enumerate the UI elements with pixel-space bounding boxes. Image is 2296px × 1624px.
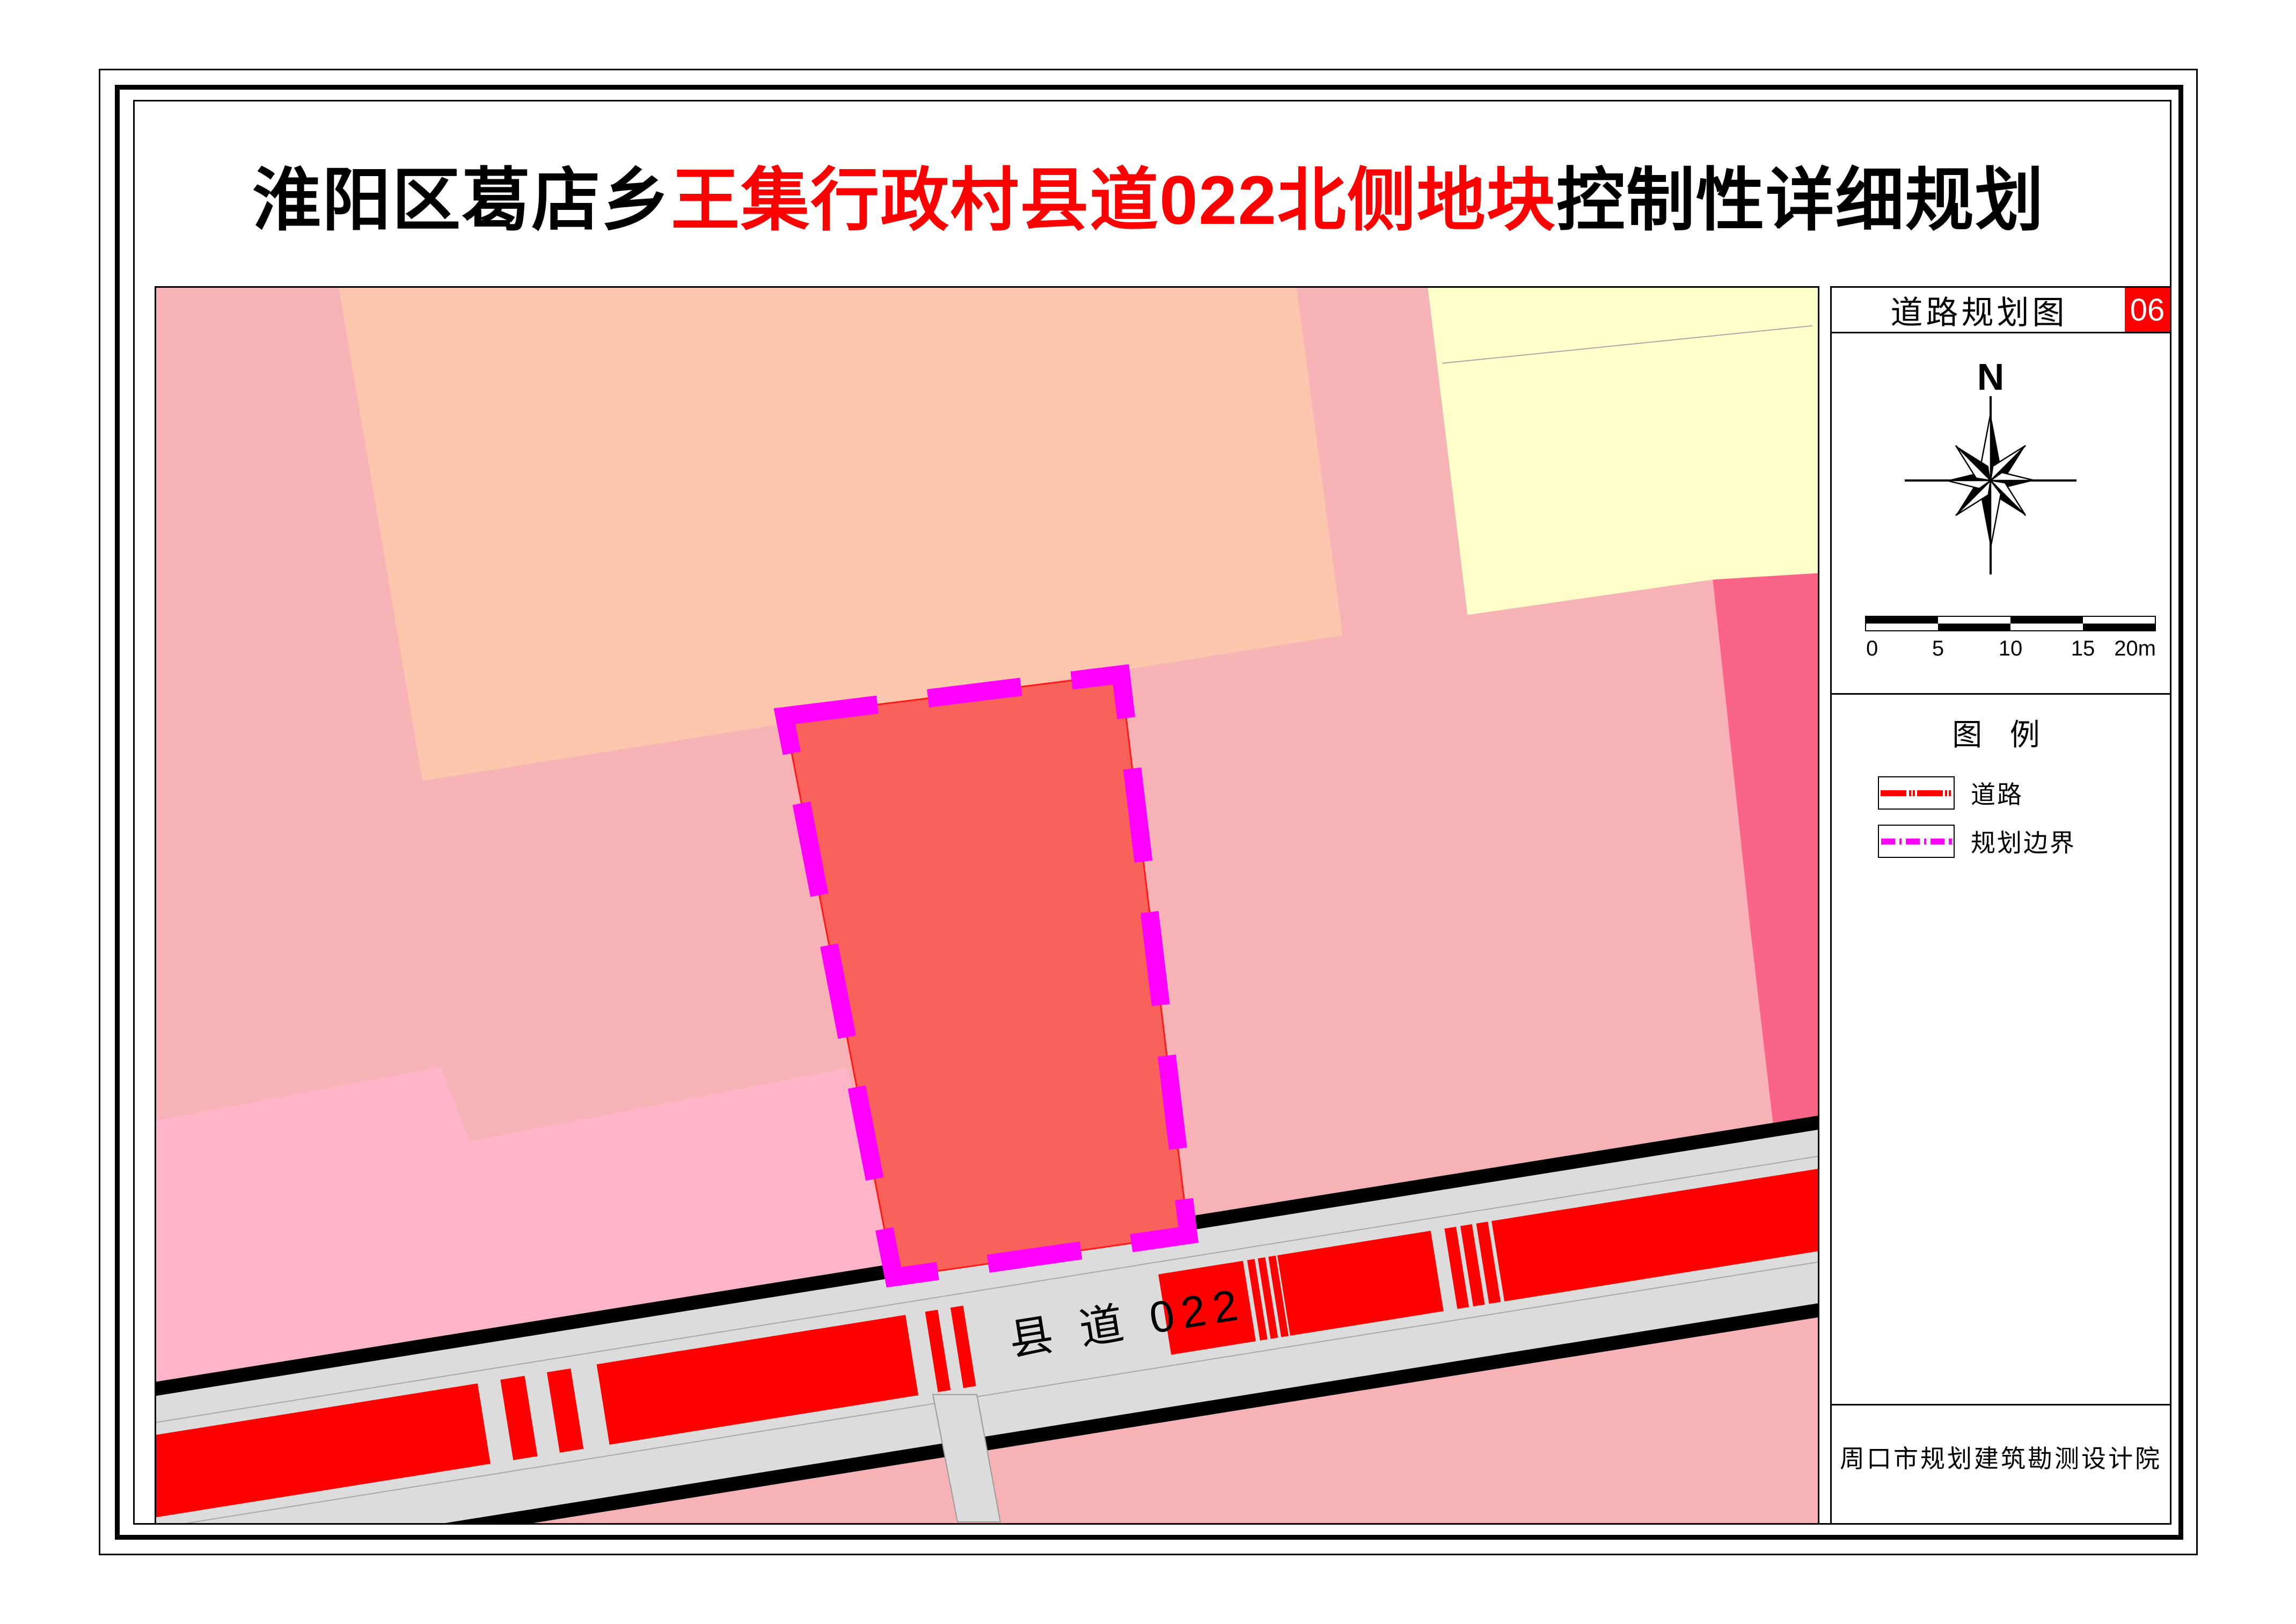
planning-map: 县 道 022: [155, 286, 1819, 1525]
legend-title: 图 例: [1832, 711, 2170, 754]
scale-tick-0: 0: [1866, 637, 1878, 660]
title-part-plot: 王集行政村县道022北侧地块: [671, 144, 1556, 244]
planning-boundary-icon: [1879, 826, 1954, 857]
sidebar-header: 道路规划图 06: [1832, 288, 2170, 333]
legend-swatch-boundary: [1878, 825, 1955, 858]
zone-yellow-parcel: [1428, 288, 1818, 615]
legend-label-boundary: 规划边界: [1971, 825, 2076, 858]
sidebar-divider-1: [1832, 693, 2170, 695]
page-title: 淮阳区葛店乡王集行政村县道022北侧地块控制性详细规划: [140, 105, 2158, 282]
road-line-icon: [1879, 777, 1954, 809]
map-canvas: 县 道 022: [156, 288, 1818, 1523]
compass-north-label: N: [1977, 356, 2005, 398]
compass-rose-icon: N: [1860, 350, 2121, 611]
scale-tick-15: 15: [2071, 637, 2095, 660]
design-institute-name: 周口市规划建筑勘测设计院: [1832, 1404, 2170, 1475]
sidebar-panel: 道路规划图 06 N: [1830, 286, 2171, 1525]
sheet-number-badge: 06: [2125, 288, 2170, 332]
scale-tick-5: 5: [1932, 637, 1944, 660]
legend-label-road: 道路: [1971, 776, 2023, 810]
title-part-district: 淮阳区葛店乡: [252, 144, 671, 244]
scale-bar: 0 5 10 15 20m: [1865, 615, 2156, 669]
scale-tick-10: 10: [1999, 637, 2023, 660]
scale-tick-20m: 20m: [2114, 637, 2156, 660]
title-part-plan: 控制性详细规划: [1556, 144, 2045, 244]
legend-swatch-road: [1878, 776, 1955, 810]
sheet-name: 道路规划图: [1832, 288, 2126, 332]
